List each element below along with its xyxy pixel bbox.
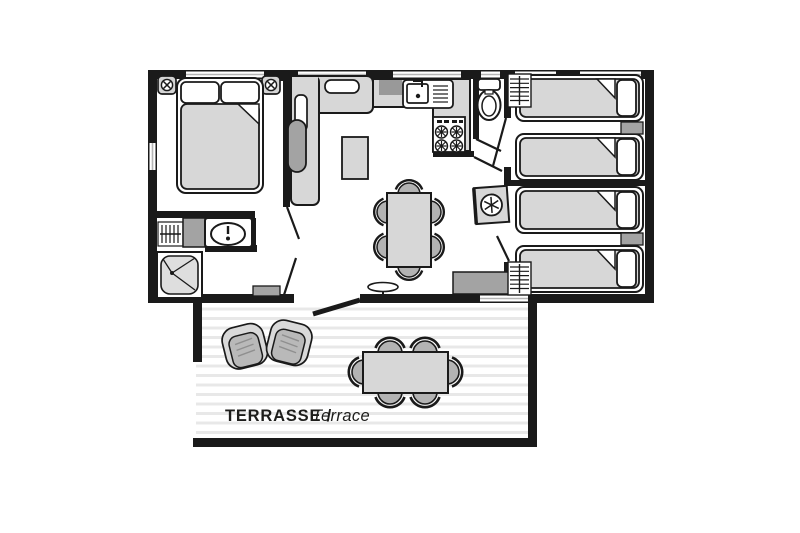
refrigerator-icon	[474, 186, 509, 224]
single-bed-icon	[516, 134, 643, 180]
shower-icon	[157, 252, 202, 298]
hallway	[474, 186, 509, 224]
coffee-table-icon	[342, 137, 368, 179]
wc	[478, 79, 501, 120]
floor-plan-page: TERRASSE / Terrace	[0, 0, 800, 533]
single-bed-icon	[516, 246, 643, 292]
wardrobe-icon	[158, 222, 183, 246]
terrace-label-en: Terrace	[312, 407, 370, 425]
bath-cabinet	[183, 218, 205, 247]
master-bedroom	[158, 76, 280, 193]
sideboard-icon	[453, 272, 510, 294]
pillow	[221, 82, 259, 103]
double-bed-icon	[177, 78, 263, 193]
toilet-icon	[478, 79, 501, 120]
drain	[416, 94, 420, 98]
dining-table-icon	[387, 193, 431, 267]
nightstand-icon	[621, 233, 643, 245]
wall-right	[645, 70, 654, 303]
washbasin-icon	[205, 218, 252, 247]
ceiling-light-icon	[158, 76, 176, 94]
pillow	[181, 82, 219, 103]
terrace-table-top	[363, 352, 448, 393]
drain	[226, 237, 230, 241]
doormat-icon	[253, 286, 280, 296]
stove-icon	[433, 117, 465, 152]
terrace-wall-left	[193, 302, 202, 362]
wall-bath-top	[148, 211, 255, 218]
sofa-cushion	[325, 80, 359, 93]
wardrobe-icon	[508, 74, 531, 107]
terrace-wall-bottom	[193, 438, 537, 447]
kitchen-sink-icon	[403, 80, 453, 108]
appliance-icon	[379, 80, 402, 95]
single-bed-icon	[516, 75, 643, 121]
wall-left	[148, 70, 157, 303]
nightstand-icon	[621, 122, 643, 134]
terrace-wall-right	[528, 302, 537, 447]
floor-plan: TERRASSE / Terrace	[0, 0, 800, 533]
sofa-seat-pad	[288, 120, 306, 172]
wardrobe-icon	[508, 262, 531, 295]
terrace: TERRASSE / Terrace	[193, 302, 537, 447]
single-bed-icon	[516, 187, 643, 233]
wall-hall-stub	[504, 167, 511, 181]
mattress	[181, 104, 259, 189]
ceiling-light-icon	[262, 76, 280, 94]
